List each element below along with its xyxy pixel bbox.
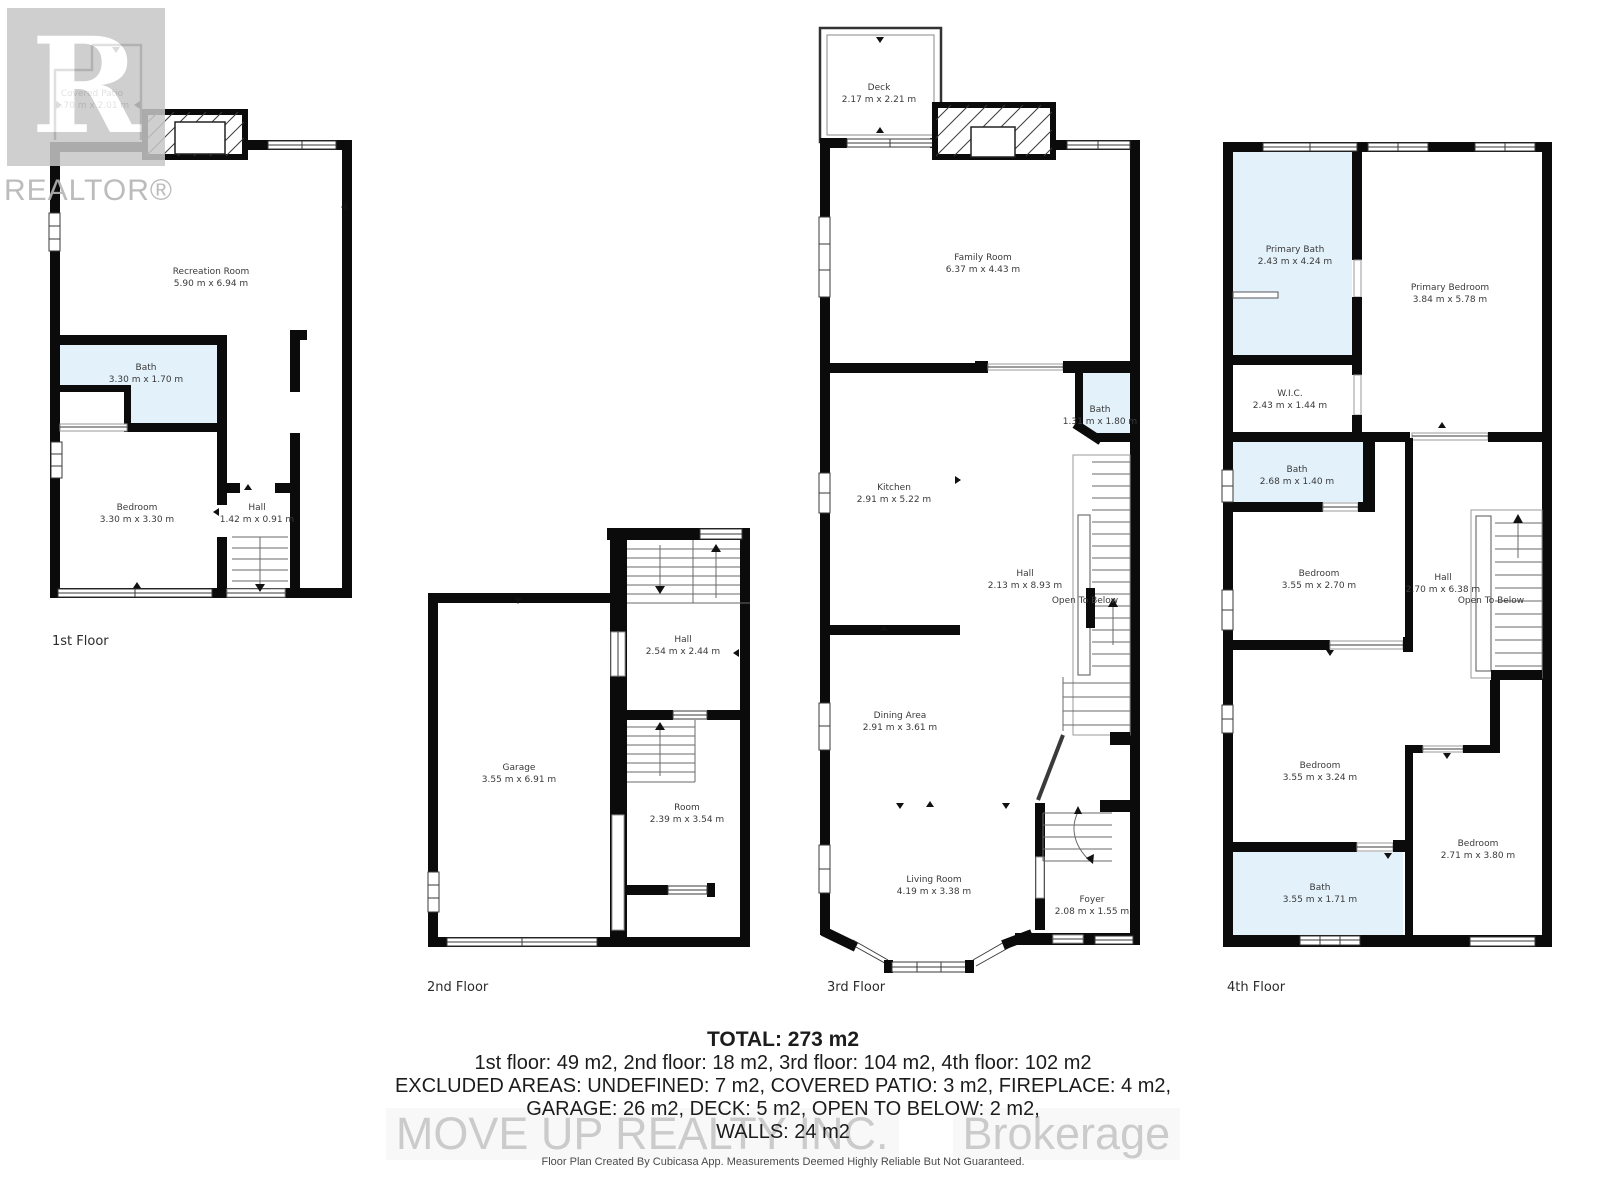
room-label-room-2nd: Room2.39 m x 3.54 m bbox=[650, 802, 724, 826]
bath-area bbox=[1233, 152, 1403, 935]
floor-plan-2nd bbox=[415, 510, 760, 955]
floor-label-3rd: 3rd Floor bbox=[827, 980, 885, 995]
open-to-below-4th: Open To Below bbox=[1458, 596, 1524, 606]
room-label-hall-3rd: Hall2.13 m x 8.93 m bbox=[988, 568, 1062, 592]
floor-label-1st: 1st Floor bbox=[52, 634, 109, 649]
room-label-bath-268: Bath2.68 m x 1.40 m bbox=[1260, 464, 1334, 488]
open-to-below-3rd: Open To Below bbox=[1052, 596, 1118, 606]
room-label-bath-3rd: Bath1.31 m x 1.80 m bbox=[1063, 404, 1137, 428]
floor-plan-sheet: Covered Patio1.70 m x 2.01 m Recreation … bbox=[0, 0, 1600, 1200]
room-label-foyer: Foyer2.08 m x 1.55 m bbox=[1055, 894, 1129, 918]
room-label-hall-4th: Hall2.70 m x 6.38 m bbox=[1406, 572, 1480, 596]
room-label-bath-355: Bath3.55 m x 1.71 m bbox=[1283, 882, 1357, 906]
towel-bar bbox=[1233, 292, 1278, 298]
room-label-hall-2nd: Hall2.54 m x 2.44 m bbox=[646, 634, 720, 658]
room-label-deck: Deck2.17 m x 2.21 m bbox=[842, 82, 916, 106]
room-label-bedroom-380: Bedroom2.71 m x 3.80 m bbox=[1441, 838, 1515, 862]
floor-label-2nd: 2nd Floor bbox=[427, 980, 488, 995]
floor-plan-4th bbox=[1195, 130, 1560, 960]
room-label-dining-area: Dining Area2.91 m x 3.61 m bbox=[863, 710, 937, 734]
room-label-hall-1st: Hall1.42 m x 0.91 m bbox=[220, 502, 294, 526]
floor-label-4th: 4th Floor bbox=[1227, 980, 1285, 995]
floor-areas: 1st floor: 49 m2, 2nd floor: 18 m2, 3rd … bbox=[0, 1052, 1566, 1075]
room-label-family-room: Family Room6.37 m x 4.43 m bbox=[946, 252, 1020, 276]
fireplace bbox=[935, 105, 1053, 157]
room-label-wic: W.I.C.2.43 m x 1.44 m bbox=[1253, 388, 1327, 412]
entry-steps bbox=[1043, 806, 1112, 864]
realtor-logo: R bbox=[7, 8, 165, 166]
bay-window bbox=[823, 931, 1032, 973]
disclaimer: Floor Plan Created By Cubicasa App. Meas… bbox=[0, 1156, 1566, 1168]
room-label-kitchen: Kitchen2.91 m x 5.22 m bbox=[857, 482, 931, 506]
room-label-recreation-room: Recreation Room5.90 m x 6.94 m bbox=[173, 266, 250, 290]
garage-door bbox=[447, 938, 597, 946]
staircase bbox=[1471, 510, 1542, 680]
room-label-bath-1st: Bath3.30 m x 1.70 m bbox=[109, 362, 183, 386]
floor-plan-3rd bbox=[795, 20, 1150, 980]
excluded-areas-2: GARAGE: 26 m2, DECK: 5 m2, OPEN TO BELOW… bbox=[0, 1098, 1566, 1121]
realtor-wordmark: REALTOR® bbox=[4, 174, 173, 208]
area-summary: TOTAL: 273 m2 1st floor: 49 m2, 2nd floo… bbox=[0, 1028, 1566, 1144]
walls-area: WALLS: 24 m2 bbox=[0, 1121, 1566, 1144]
room-label-bedroom-270: Bedroom3.55 m x 2.70 m bbox=[1282, 568, 1356, 592]
staircase bbox=[627, 720, 695, 782]
room-label-garage: Garage3.55 m x 6.91 m bbox=[482, 762, 556, 786]
staircase bbox=[232, 537, 288, 592]
room-label-living-room: Living Room4.19 m x 3.38 m bbox=[897, 874, 971, 898]
excluded-areas-1: EXCLUDED AREAS: UNDEFINED: 7 m2, COVERED… bbox=[0, 1075, 1566, 1098]
total-area: TOTAL: 273 m2 bbox=[0, 1028, 1566, 1052]
realtor-logo-letter: R bbox=[31, 21, 141, 153]
room-label-primary-bedroom: Primary Bedroom3.84 m x 5.78 m bbox=[1411, 282, 1489, 306]
room-label-bedroom-1st: Bedroom3.30 m x 3.30 m bbox=[100, 502, 174, 526]
staircase bbox=[627, 540, 750, 603]
room-label-primary-bath: Primary Bath2.43 m x 4.24 m bbox=[1258, 244, 1332, 268]
room-label-bedroom-324: Bedroom3.55 m x 3.24 m bbox=[1283, 760, 1357, 784]
